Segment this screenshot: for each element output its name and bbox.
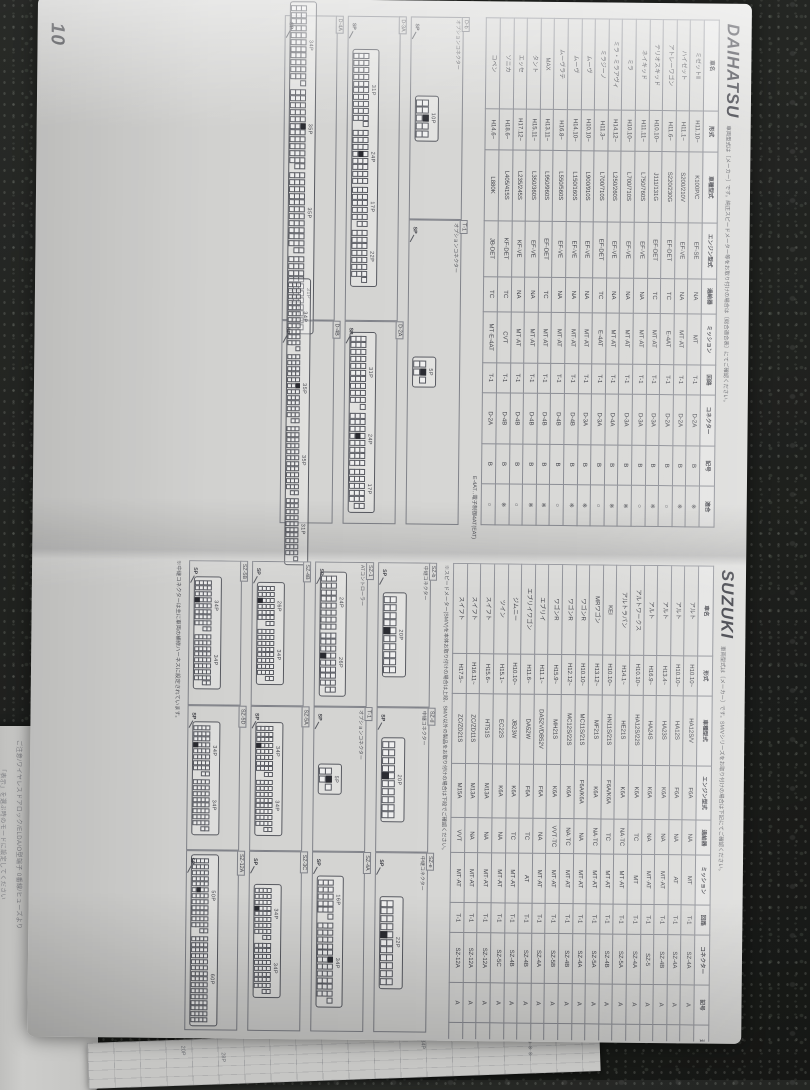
table-cell: T-1 xyxy=(477,903,491,933)
table-cell: MAX xyxy=(540,18,555,109)
table-cell: NA xyxy=(565,277,579,313)
connector-segment: 34P xyxy=(195,725,217,777)
table-cell: ※ xyxy=(685,486,699,527)
connector-drawing: 16P34P xyxy=(316,876,344,1008)
pin xyxy=(289,234,295,240)
sp-label: SP xyxy=(351,23,357,30)
pin xyxy=(255,923,260,928)
pin xyxy=(361,277,367,283)
table-cell: H17.5~ xyxy=(453,653,467,693)
table-cell: NA xyxy=(606,278,620,314)
pin xyxy=(290,123,296,129)
suzuki-title: SUZUKI xyxy=(716,570,737,639)
connector-segment: 20P xyxy=(385,596,404,673)
pin-grid xyxy=(385,596,397,673)
table-cell: T-1 xyxy=(600,904,614,934)
pin xyxy=(290,136,296,142)
daihatsu-vehicle-table: 車名形式車種型式エンジン型式過給器ミッション回路コネクター記号適合ミゼットⅡH1… xyxy=(481,17,720,551)
pin-grid xyxy=(197,580,212,632)
column-header: エンジン型式 xyxy=(696,766,712,821)
pin xyxy=(195,603,200,608)
pin xyxy=(192,916,197,921)
table-cell: ワゴンR xyxy=(575,565,590,655)
pin xyxy=(317,984,323,990)
column-header: 車名 xyxy=(698,566,714,656)
pin-grid xyxy=(291,172,305,253)
table-cell: HA24S xyxy=(642,695,656,765)
connector-segment: 24P xyxy=(355,130,376,184)
table-cell: ※ xyxy=(617,485,631,526)
table-cell: T-1 xyxy=(578,363,592,394)
table-cell: ワゴンR xyxy=(548,564,563,654)
table-cell: L700/710S xyxy=(621,151,635,222)
pin xyxy=(258,629,263,634)
sp-pin xyxy=(255,905,260,910)
pin xyxy=(321,632,327,638)
table-cell: TC xyxy=(660,278,674,314)
pin xyxy=(290,143,296,149)
table-cell: VVT xyxy=(451,818,465,853)
table-cell: K6A xyxy=(614,765,628,820)
pin xyxy=(289,282,294,287)
table-cell: T-1 xyxy=(537,363,551,394)
pin xyxy=(256,792,261,797)
table-cell: エブリイ xyxy=(535,564,550,654)
pin xyxy=(317,991,323,997)
pin xyxy=(254,960,259,965)
pin xyxy=(291,66,297,72)
pin-grid xyxy=(319,923,333,1004)
table-cell: HA23S xyxy=(656,695,670,765)
table-cell: M15A xyxy=(451,763,465,818)
pin xyxy=(294,247,300,253)
table-cell: SZ-4A xyxy=(681,935,695,985)
column-header: 過給器 xyxy=(701,279,716,315)
pin xyxy=(318,887,324,893)
pin xyxy=(352,194,358,200)
pin xyxy=(318,930,324,936)
pin xyxy=(352,214,358,220)
pin xyxy=(352,257,358,263)
under-sheet-text-line: ご注意/ワイヤレスドアロック/ELDA/O型端子 0番線/ヒューズより xyxy=(15,740,24,929)
table-cell: TC xyxy=(519,819,533,854)
table-cell: ○ xyxy=(482,484,496,525)
table-cell: MT·AT xyxy=(565,313,579,364)
table-cell: MT·AT xyxy=(505,853,519,903)
pin-grid xyxy=(292,89,306,170)
pin xyxy=(287,455,292,460)
table-cell: HA12S xyxy=(669,695,683,765)
table-cell: MT·AT xyxy=(586,854,600,904)
pin xyxy=(380,954,387,961)
connector-segment: 31P xyxy=(288,498,306,561)
pin xyxy=(318,907,324,913)
pin xyxy=(194,731,199,736)
table-cell: K100P/C xyxy=(689,152,703,223)
pin xyxy=(255,894,260,899)
pin xyxy=(351,335,357,341)
sp-pin xyxy=(320,653,326,659)
table-cell: H11.1~ xyxy=(534,654,548,694)
table-cell: ワゴンR xyxy=(562,565,577,655)
connector-segment: 5P xyxy=(416,361,434,384)
pin-count-label: 34P xyxy=(210,800,216,811)
pin xyxy=(321,582,327,588)
pin xyxy=(194,652,199,657)
table-cell: NA xyxy=(511,277,525,313)
pin xyxy=(191,1006,196,1011)
pin xyxy=(317,970,323,976)
pin xyxy=(193,766,198,771)
table-cell: L150/160S xyxy=(566,150,580,221)
table-cell: D-3A xyxy=(645,395,659,446)
table-cell: CVT xyxy=(497,312,511,363)
connector-segment: 35P xyxy=(291,172,312,253)
pin xyxy=(317,936,323,942)
table-cell: アルト xyxy=(643,565,658,655)
suzuki-vehicle-table: 車名形式車種型式エンジン型式過給器ミッション回路コネクター記号適合アルトH10.… xyxy=(448,563,714,1042)
table-cell: ○ xyxy=(509,484,523,525)
connector-cell-SZ-3C: SZ-3C34P34PSP xyxy=(248,851,303,1031)
sp-label: SP xyxy=(317,714,323,721)
table-cell: A xyxy=(449,982,463,1022)
pin-count-label: 31P xyxy=(300,524,306,535)
pin-grid xyxy=(196,634,211,686)
pin-grid xyxy=(354,187,368,227)
pin xyxy=(287,389,292,394)
table-cell: T-1 xyxy=(627,905,641,935)
column-header: 記号 xyxy=(694,985,709,1025)
pin xyxy=(350,460,356,466)
pin xyxy=(255,929,260,934)
table-cell: MT·AT xyxy=(510,312,524,363)
pin xyxy=(382,765,389,772)
table-cell: H10.10~ xyxy=(670,656,684,696)
pin xyxy=(254,948,259,953)
pin xyxy=(353,187,359,193)
sp-label: SP xyxy=(255,568,261,575)
pin xyxy=(414,369,421,376)
pin xyxy=(195,580,200,585)
pin xyxy=(255,917,260,922)
pin xyxy=(287,406,292,411)
pin xyxy=(416,115,423,122)
pin xyxy=(380,978,387,985)
pin xyxy=(350,453,356,459)
table-cell: SZ-5A xyxy=(613,934,627,984)
connector-cell-SZ-4A: SZ-4A16P34PSP xyxy=(311,852,366,1032)
pin-count-label: 22P xyxy=(368,251,374,262)
pin xyxy=(353,171,359,177)
pin-grid xyxy=(289,354,300,423)
pin xyxy=(290,157,296,163)
table-cell: SZ-12A xyxy=(450,933,464,983)
table-cell: MC11S/21S xyxy=(574,694,588,764)
pin xyxy=(352,200,358,206)
pin-grid xyxy=(288,498,299,561)
table-cell: A xyxy=(653,985,667,1025)
pin xyxy=(194,669,199,674)
sp-label: SP xyxy=(378,859,384,866)
pin xyxy=(384,635,391,642)
table-cell: H10.10~ xyxy=(575,655,589,695)
sp-label: SP xyxy=(285,327,291,334)
column-header: エンジン型式 xyxy=(702,223,718,279)
suzuki-section: SUZUKI 車両型式は〔メーカー〕です。SM/Vシリーズをお取り付けの場合は下… xyxy=(27,558,746,1041)
table-cell: EF-VE xyxy=(552,221,566,277)
table-cell: EF-DET xyxy=(661,222,675,278)
pin-grid xyxy=(293,5,307,86)
table-cell: EF-VE xyxy=(620,222,634,278)
pin-count-label: 26P xyxy=(275,601,281,612)
pin xyxy=(258,604,263,609)
table-cell: MT·AT xyxy=(478,853,492,903)
pin-count-label: 20P xyxy=(397,629,403,640)
connector-segment: 24P xyxy=(323,576,344,630)
table-cell: H10.10~ xyxy=(649,111,663,152)
table-cell: F6A/K6A xyxy=(574,764,588,819)
pin xyxy=(318,880,324,886)
pin xyxy=(191,1017,196,1022)
pin xyxy=(416,99,423,106)
connector-id-tab: SZ-5D xyxy=(238,706,247,728)
pin xyxy=(195,609,200,614)
table-cell: T-1 xyxy=(592,364,606,395)
pin xyxy=(258,635,263,640)
pin xyxy=(287,412,292,417)
table-cell: K6A xyxy=(628,765,642,820)
pin-grid xyxy=(320,880,334,920)
table-cell: SZ-4B xyxy=(653,935,667,985)
pin xyxy=(357,221,363,227)
table-cell: NA xyxy=(532,819,546,854)
connector-cell-SZ-b: SZ-b中継コネクター20PSP xyxy=(377,562,432,708)
sp-pin xyxy=(258,598,263,603)
pin xyxy=(193,754,198,759)
table-cell: スイフト xyxy=(480,564,495,654)
table-cell: T-1 xyxy=(646,364,660,395)
table-cell: T-1 xyxy=(564,363,578,394)
table-cell: T-1 xyxy=(668,905,682,935)
pin xyxy=(289,200,295,206)
table-cell: HA12S/22S xyxy=(629,695,643,765)
pin xyxy=(353,157,359,163)
pin-count-label: 34P xyxy=(211,745,217,756)
table-cell: EF-SE xyxy=(688,223,702,279)
column-header: 回路 xyxy=(695,905,710,935)
pin xyxy=(192,882,197,887)
pin xyxy=(287,461,292,466)
pin xyxy=(291,32,297,38)
pin xyxy=(191,1000,196,1005)
table-cell: HE21S xyxy=(615,695,629,765)
table-cell: MT xyxy=(681,855,695,905)
pin xyxy=(254,942,259,947)
connector-segment: 17P xyxy=(351,469,372,509)
table-cell: B xyxy=(591,445,605,486)
pin-grid xyxy=(352,412,366,466)
connector-drawing: 50P60P xyxy=(190,854,219,1026)
sp-label: SP xyxy=(348,328,354,335)
pin xyxy=(351,349,357,355)
connector-cell-T-1: T-1オプションコネクター5PSP xyxy=(406,220,462,525)
table-cell: MC12S/22S xyxy=(561,694,575,764)
strip-fragment: 20P xyxy=(179,1046,185,1056)
pin xyxy=(199,928,204,933)
table-cell: ※ xyxy=(680,1025,694,1042)
table-cell: MT·AT xyxy=(654,855,668,905)
pin xyxy=(287,383,292,388)
pin xyxy=(351,369,357,375)
table-cell: MRワゴン xyxy=(589,565,604,655)
table-cell: F6A xyxy=(682,765,696,820)
pin xyxy=(290,172,296,178)
pin xyxy=(286,509,291,514)
sp-label: SP xyxy=(315,859,321,866)
pin xyxy=(353,178,359,184)
pin xyxy=(320,659,326,665)
pin xyxy=(290,109,296,115)
pin xyxy=(192,864,197,869)
pin xyxy=(349,496,355,502)
table-cell: ※ xyxy=(666,1025,680,1042)
connector-segment: 26P xyxy=(322,632,343,693)
pin xyxy=(382,796,389,803)
table-cell: D-2A xyxy=(659,395,673,446)
column-header: 車種型式 xyxy=(697,696,713,766)
pin xyxy=(350,397,356,403)
table-cell: SZ-5B xyxy=(545,934,559,984)
pin xyxy=(257,737,262,742)
connector-segment: 16P xyxy=(320,880,341,920)
table-cell: D-4B xyxy=(523,393,537,444)
pin xyxy=(363,121,369,127)
connector-segment: 17P xyxy=(354,187,375,227)
table-cell: ミラ xyxy=(622,19,637,110)
pin xyxy=(382,804,389,811)
pin xyxy=(383,666,390,673)
table-cell: F6A xyxy=(669,765,683,820)
pin xyxy=(258,610,263,615)
pin xyxy=(256,786,261,791)
pin xyxy=(352,264,358,270)
pin xyxy=(352,236,358,242)
pin xyxy=(256,803,261,808)
pin xyxy=(257,731,262,736)
pin-count-label: 34P xyxy=(334,958,340,969)
column-header: ミッション xyxy=(701,314,717,365)
table-cell: スイフト xyxy=(453,563,468,653)
pin xyxy=(384,643,391,650)
sp-label: SP xyxy=(191,712,197,719)
connector-id-tab: SZ-4B xyxy=(303,561,312,582)
connector-id-tab: SZ-12A xyxy=(237,851,246,875)
connector-id-tab: SZ-3C xyxy=(300,852,309,874)
table-cell: SZ-4B xyxy=(504,933,518,983)
pin xyxy=(319,768,326,775)
pin xyxy=(382,741,389,748)
table-cell: L405/415S xyxy=(498,150,512,221)
table-cell: ○ xyxy=(631,486,645,527)
pin-count-label: 34P xyxy=(302,311,308,322)
connector-subtitle: ATコントローラー xyxy=(359,565,366,606)
pin xyxy=(191,988,196,993)
pin xyxy=(351,342,357,348)
table-cell: S200/210V xyxy=(675,152,689,223)
table-cell: K6A xyxy=(560,764,574,819)
pin xyxy=(350,446,356,452)
pin xyxy=(191,953,196,958)
pin-count-label: 26P xyxy=(337,657,343,668)
connector-cell-D-4A: D-4A34P35P35P31PSP xyxy=(282,15,338,320)
suzuki-diagram-footnote: ※中継コネクターは主に車両の補修ハーネスに設定されています。 xyxy=(170,560,183,1036)
pin xyxy=(191,971,196,976)
table-cell: ムーヴラテ xyxy=(554,18,569,109)
table-cell: MT·AT xyxy=(674,314,688,365)
sp-pin xyxy=(384,627,391,634)
table-cell: D-3A xyxy=(618,394,632,445)
pin xyxy=(255,900,260,905)
pin-grid xyxy=(290,282,301,351)
table-cell: DA52W xyxy=(520,694,534,764)
table-cell: MT·AT xyxy=(450,853,464,903)
table-cell: EC22S xyxy=(493,694,507,764)
table-cell: H11.6~ xyxy=(521,654,535,694)
pin xyxy=(291,5,297,11)
pin-count-label: 35P xyxy=(306,207,312,218)
connector-segment: 50P xyxy=(194,858,216,933)
table-cell: A xyxy=(667,985,681,1025)
pin-grid xyxy=(195,725,210,777)
table-cell: B xyxy=(618,445,632,486)
table-cell: ※ xyxy=(449,1022,463,1042)
pin xyxy=(286,498,291,503)
pin xyxy=(288,335,293,340)
connector-id-tab: T-1 xyxy=(364,707,373,721)
connector-id-tab: D-3A xyxy=(399,16,408,34)
table-cell: T-1 xyxy=(518,903,532,933)
table-cell: L900/910S xyxy=(580,151,594,222)
pin-grid xyxy=(194,858,209,933)
table-cell: MT xyxy=(687,314,701,365)
table-cell: TC xyxy=(505,818,519,853)
table-cell: B xyxy=(496,444,510,485)
table-cell: T-1 xyxy=(687,365,701,396)
pin-count-label: 10P xyxy=(430,113,436,124)
pin xyxy=(195,640,200,645)
pin-count-label: 34P xyxy=(275,649,281,660)
pin xyxy=(256,766,261,771)
pin-count-label: 35P xyxy=(301,383,307,394)
pin-count-label: 60P xyxy=(208,974,214,985)
pin xyxy=(382,788,389,795)
table-cell: MT·AT xyxy=(646,313,660,364)
table-cell: MT·AT xyxy=(491,853,505,903)
column-header: 回路 xyxy=(700,365,715,396)
column-header: 車種型式 xyxy=(702,152,718,223)
pin xyxy=(192,870,197,875)
pin xyxy=(254,966,259,971)
connector-id-tab: SZ-b xyxy=(429,563,438,581)
pin xyxy=(384,612,391,619)
pin xyxy=(321,646,327,652)
table-cell: HT51S xyxy=(479,693,493,763)
table-cell: L700/710S xyxy=(593,151,607,222)
table-cell: TC xyxy=(600,819,614,854)
pin xyxy=(286,538,291,543)
pin-grid xyxy=(288,426,299,495)
pin xyxy=(353,130,359,136)
